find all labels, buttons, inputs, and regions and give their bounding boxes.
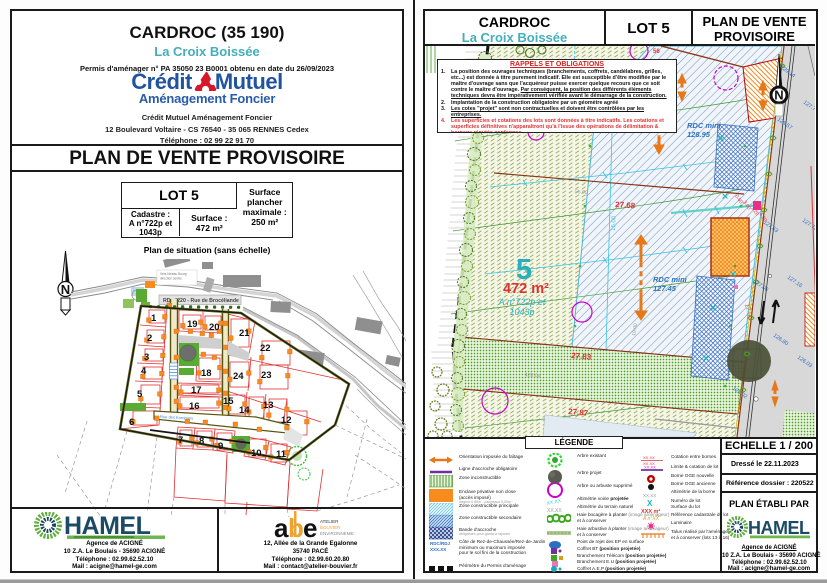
- svg-text:18: 18: [201, 368, 212, 379]
- svg-text:N: N: [774, 88, 783, 103]
- svg-text:a: a: [274, 513, 289, 543]
- svg-text:HAMEL: HAMEL: [748, 518, 810, 538]
- svg-text:X: X: [647, 499, 653, 508]
- svg-text:56: 56: [653, 49, 660, 55]
- svg-text:RDC/RDJ: RDC/RDJ: [430, 541, 450, 546]
- svg-text:16: 16: [189, 401, 200, 412]
- svg-text:XX.XX: XX.XX: [643, 455, 655, 460]
- svg-text:7: 7: [178, 435, 183, 446]
- svg-text:9: 9: [218, 441, 223, 452]
- svg-text:23: 23: [261, 370, 272, 381]
- svg-text:20: 20: [209, 322, 220, 333]
- svg-text:472 m²: 472 m²: [503, 281, 549, 297]
- svg-text:e: e: [303, 513, 317, 543]
- svg-text:3: 3: [144, 352, 149, 363]
- svg-text:5: 5: [137, 389, 143, 400]
- svg-text:14: 14: [239, 405, 250, 416]
- svg-text:6: 6: [129, 417, 134, 428]
- svg-text:55.00: 55.00: [575, 189, 588, 196]
- svg-text:8: 8: [199, 436, 204, 447]
- svg-text:27.87: 27.87: [568, 407, 589, 418]
- svg-text:21: 21: [239, 328, 250, 339]
- svg-text:XX.XX: XX.XX: [644, 465, 656, 470]
- svg-text:15.00: 15.00: [611, 215, 618, 231]
- svg-text:10: 10: [251, 448, 262, 459]
- svg-text:17: 17: [191, 385, 202, 396]
- svg-text:ATELIER: ATELIER: [320, 519, 339, 524]
- svg-text:15: 15: [223, 396, 234, 407]
- svg-text:11: 11: [276, 449, 287, 460]
- svg-text:2: 2: [147, 333, 152, 344]
- svg-text:13: 13: [263, 400, 274, 411]
- svg-text:direction centre: direction centre: [160, 277, 182, 281]
- svg-text:27.68: 27.68: [615, 200, 636, 210]
- svg-text:4: 4: [141, 366, 147, 377]
- svg-text:12: 12: [281, 415, 292, 426]
- svg-text:1: 1: [151, 313, 157, 324]
- svg-text:XXX.XX: XXX.XX: [430, 547, 446, 552]
- svg-text:Vers Niveau Bourg: Vers Niveau Bourg: [160, 272, 187, 276]
- svg-text:19: 19: [187, 319, 198, 330]
- svg-text:ENVIRONNEMENT: ENVIRONNEMENT: [320, 531, 354, 536]
- svg-text:27.83: 27.83: [571, 351, 592, 362]
- svg-text:22: 22: [260, 343, 271, 354]
- svg-text:24: 24: [233, 371, 244, 382]
- svg-text:BOUVIER: BOUVIER: [320, 525, 341, 530]
